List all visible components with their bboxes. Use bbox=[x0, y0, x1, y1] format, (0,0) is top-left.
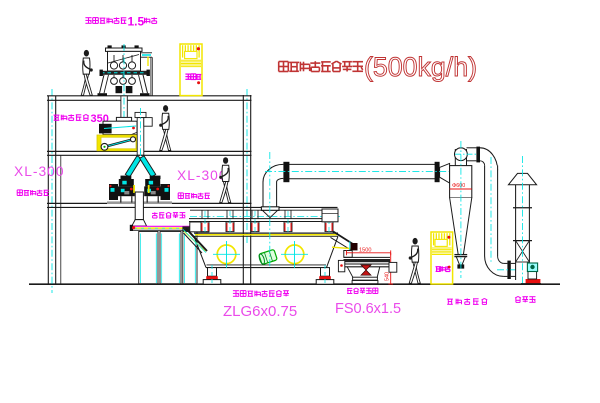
svg-text:1.5: 1.5 bbox=[128, 15, 145, 29]
svg-text:XL-300: XL-300 bbox=[14, 164, 65, 179]
svg-text:1500: 1500 bbox=[359, 248, 371, 254]
svg-text:(500kg/h): (500kg/h) bbox=[364, 52, 477, 82]
svg-text:ZLG6x0.75: ZLG6x0.75 bbox=[223, 303, 297, 320]
svg-text:XL-300: XL-300 bbox=[177, 168, 228, 183]
svg-text:540: 540 bbox=[385, 272, 391, 281]
svg-text:FS0.6x1.5: FS0.6x1.5 bbox=[335, 301, 401, 317]
svg-text:Φ600: Φ600 bbox=[452, 183, 465, 189]
